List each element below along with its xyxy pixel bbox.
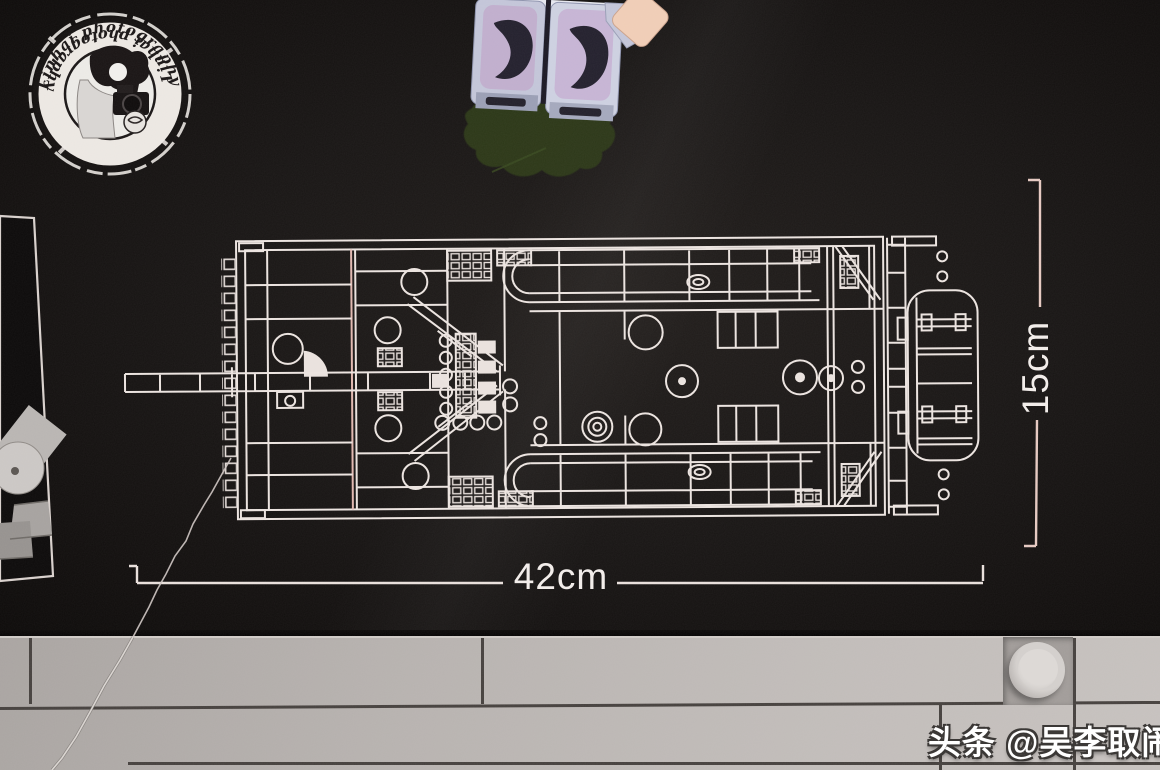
photographer-logo-stamp-icon: Linhai photography Linhai photography	[18, 8, 202, 184]
tile-seam	[0, 701, 1160, 710]
width-dimension-label: 42cm	[504, 556, 618, 598]
lego-stud-top	[1018, 649, 1058, 689]
height-dimension-label: 15cm	[1015, 311, 1057, 425]
box-side-panel	[0, 205, 70, 585]
minifigure-legs	[440, 0, 700, 200]
photo-scene: Linhai photography Linhai photography	[0, 0, 1160, 770]
tile-seam	[29, 638, 32, 704]
byline-watermark: 头条 @吴李取闹	[928, 716, 1160, 764]
minifig-body-group	[470, 0, 673, 124]
minifig-leg-left	[470, 0, 546, 112]
tile-seam	[481, 638, 484, 704]
model-part-block	[0, 521, 33, 559]
